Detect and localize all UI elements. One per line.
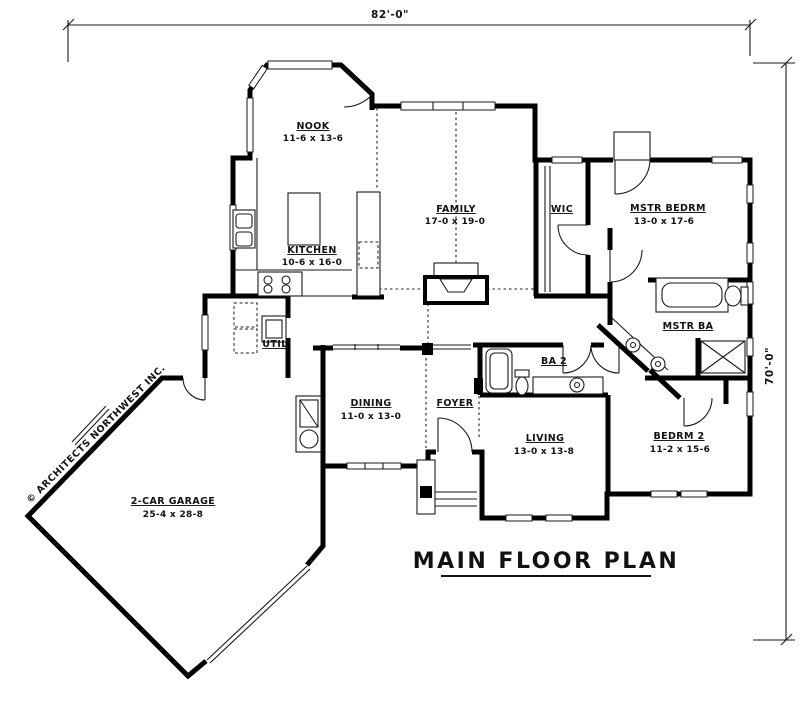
window — [747, 243, 753, 263]
doors — [183, 68, 712, 452]
room-label-dining: DINING — [350, 398, 391, 409]
bathtub-icon — [662, 283, 722, 307]
window — [747, 392, 753, 416]
window — [747, 338, 753, 356]
floor-plan-page: 82'-0" 70'-0" — [0, 0, 800, 704]
room-label-wic: WIC — [551, 204, 573, 215]
kitchen-fixtures — [233, 158, 380, 296]
garage-entry-door-arc — [183, 378, 205, 400]
room-label-master-bath: MSTR BA — [663, 321, 714, 332]
dimension-width: 82'-0" — [63, 9, 756, 62]
garage-door — [207, 566, 307, 660]
room-label-foyer: FOYER — [437, 398, 474, 409]
bedroom2-door-arc — [684, 398, 712, 426]
height-dimension-label: 70'-0" — [764, 347, 776, 385]
window — [747, 185, 753, 203]
width-dimension-label: 82'-0" — [371, 9, 409, 21]
room-size-kitchen: 10-6 x 16-0 — [282, 258, 342, 268]
room-size-garage: 25-4 x 28-8 — [143, 510, 203, 520]
window — [249, 65, 267, 88]
window — [546, 515, 572, 521]
room-label-bath2: BA 2 — [541, 356, 567, 367]
kitchen-island — [288, 193, 320, 245]
wic-fixtures — [545, 166, 550, 292]
room-label-utility: UTIL — [262, 339, 287, 350]
room-label-master-bedroom: MSTR BEDRM — [630, 203, 706, 214]
water-heater-icon — [300, 430, 318, 448]
sink-icon — [570, 378, 584, 392]
window — [552, 157, 582, 163]
window — [347, 463, 401, 469]
toilet-icon — [725, 286, 741, 306]
window — [681, 491, 707, 497]
window — [202, 315, 208, 350]
window — [247, 98, 253, 152]
room-label-living: LIVING — [526, 433, 565, 444]
bath2-door-arc — [563, 345, 591, 373]
garage-door — [210, 569, 310, 663]
entry-fixtures — [417, 460, 477, 514]
front-door-arc — [438, 418, 472, 452]
stove-icon — [258, 272, 302, 296]
window — [268, 61, 332, 69]
copyright-text: © ARCHITECTS NORTHWEST INC. — [25, 363, 168, 506]
room-size-dining: 11-0 x 13-0 — [341, 412, 401, 422]
washer-icon — [234, 303, 257, 327]
family-fixtures — [425, 263, 487, 303]
page-title: MAIN FLOOR PLAN — [413, 549, 680, 574]
window — [651, 491, 677, 497]
window — [712, 157, 742, 163]
room-size-family: 17-0 x 19-0 — [425, 217, 485, 227]
hall-door-arc2 — [591, 345, 619, 373]
bay-niche — [614, 132, 650, 160]
room-label-bedroom2: BEDRM 2 — [653, 431, 704, 442]
fireplace-icon — [425, 277, 487, 303]
living-wall-stub — [474, 378, 483, 394]
nook-door-arc — [344, 95, 372, 107]
master-bedroom-door-arc — [615, 160, 650, 194]
fireplace-hearth — [434, 263, 478, 277]
sink-icon — [626, 338, 640, 352]
dryer-icon — [234, 329, 257, 353]
vanity-counter — [533, 377, 603, 394]
porch-column — [420, 486, 432, 498]
room-label-kitchen: KITCHEN — [287, 245, 337, 256]
toilet-icon — [516, 377, 528, 395]
window — [506, 515, 532, 521]
sink-icon — [651, 357, 665, 371]
pantry-cabinet — [357, 192, 380, 296]
room-label-nook: NOOK — [296, 121, 329, 132]
hall-door-arc — [610, 250, 642, 282]
room-size-master-bedroom: 13-0 x 17-6 — [634, 217, 694, 227]
room-label-family: FAMILY — [436, 204, 476, 215]
room-size-bedroom2: 11-2 x 15-6 — [650, 445, 710, 455]
dimension-height: 70'-0" — [753, 57, 795, 645]
wic-door-arc — [558, 225, 588, 255]
room-size-nook: 11-6 x 13-6 — [283, 134, 343, 144]
window — [401, 102, 495, 110]
room-label-garage: 2-CAR GARAGE — [131, 496, 215, 507]
floor-plan-canvas: 82'-0" 70'-0" — [0, 0, 800, 704]
room-size-living: 13-0 x 13-8 — [514, 447, 574, 457]
utility-fixtures — [234, 303, 321, 452]
